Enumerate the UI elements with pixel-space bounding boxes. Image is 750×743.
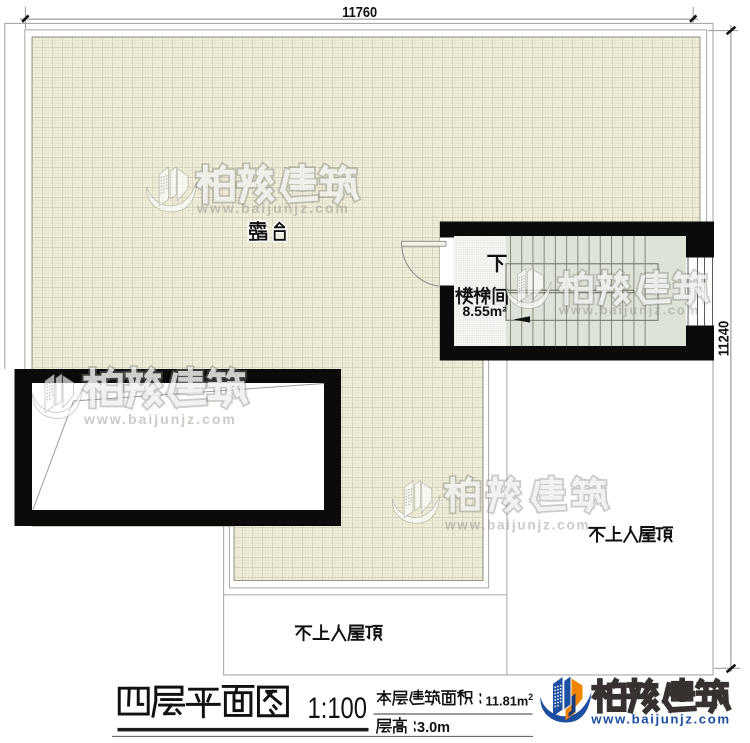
svg-text:www.baijunjz.com: www.baijunjz.com	[444, 518, 590, 533]
svg-text:1:100: 1:100	[308, 692, 368, 725]
svg-text:11760: 11760	[342, 4, 377, 21]
svg-text:8.55m²: 8.55m²	[463, 303, 508, 319]
svg-text:www.baijunjz.com: www.baijunjz.com	[558, 303, 700, 318]
svg-text:www.baijunjz.com: www.baijunjz.com	[83, 411, 237, 427]
svg-text:11240: 11240	[715, 321, 732, 357]
svg-text:www.baijunjz.com: www.baijunjz.com	[196, 200, 350, 216]
svg-text:3.0m: 3.0m	[417, 720, 450, 736]
svg-text:www.baijunjz.com: www.baijunjz.com	[590, 712, 730, 727]
svg-text:11.81m2: 11.81m2	[486, 692, 534, 709]
